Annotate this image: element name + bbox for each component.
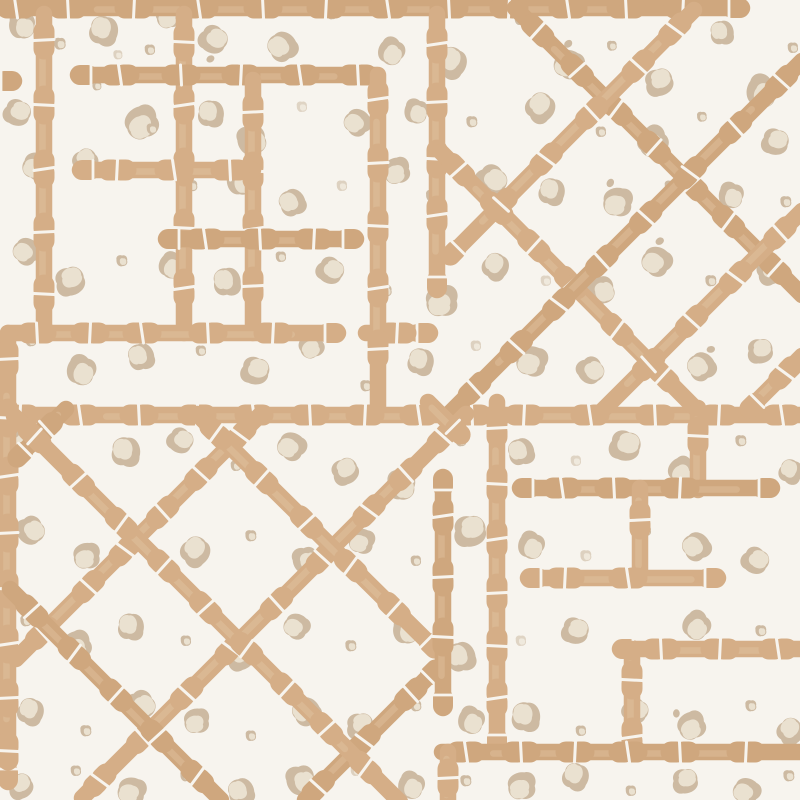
leopard-spot xyxy=(748,339,773,364)
leopard-spot xyxy=(788,42,798,53)
leopard-spot xyxy=(510,700,543,734)
leopard-spot xyxy=(711,21,734,45)
leopard-spot xyxy=(54,38,66,50)
leopard-spot xyxy=(337,180,347,191)
leopard-spot xyxy=(196,345,206,356)
leopard-spot xyxy=(238,354,273,389)
leopard-spot xyxy=(600,177,636,219)
leopard-spot xyxy=(175,531,216,572)
leopard-spot xyxy=(678,528,716,566)
bamboo-trellis-layer xyxy=(0,0,800,800)
leopard-spot xyxy=(147,123,157,134)
bamboo-bar xyxy=(441,152,696,409)
leopard-spot xyxy=(471,340,481,351)
bamboo-bar xyxy=(80,160,253,180)
bamboo-bar xyxy=(442,742,800,762)
leopard-spot xyxy=(163,423,198,458)
leopard-spot xyxy=(184,708,209,733)
leopard-spot xyxy=(783,770,794,781)
leopard-spot xyxy=(345,640,356,651)
leopard-spot xyxy=(735,435,746,446)
leopard-spot xyxy=(189,20,234,65)
leopard-spot xyxy=(576,725,586,736)
bamboo-bar xyxy=(368,75,388,410)
leopard-spot xyxy=(116,611,146,642)
leopard-spot xyxy=(116,255,127,266)
bamboo-bar xyxy=(433,477,453,708)
leopard-spot xyxy=(541,275,551,286)
leopard-spot xyxy=(636,234,683,282)
leopard-spot xyxy=(263,27,302,66)
leopard-spot xyxy=(558,614,592,647)
leopard-spot xyxy=(780,196,791,207)
wallpaper-swatch xyxy=(0,0,800,800)
leopard-spot xyxy=(571,455,581,466)
leopard-spot xyxy=(580,550,591,561)
leopard-spot xyxy=(196,98,226,129)
bamboo-bar xyxy=(622,649,642,752)
bamboo-bar xyxy=(166,229,356,249)
leopard-spot xyxy=(404,345,437,379)
leopard-spot xyxy=(705,275,716,286)
leopard-spot xyxy=(758,125,792,158)
leopard-spot xyxy=(516,635,526,646)
leopard-spot xyxy=(86,12,123,49)
bamboo-bar xyxy=(34,14,54,333)
leopard-spot xyxy=(126,341,156,372)
leopard-spot xyxy=(214,268,241,296)
bamboo-bar xyxy=(197,414,436,650)
leopard-spot xyxy=(728,773,765,800)
leopard-spot xyxy=(477,248,514,285)
leopard-spot xyxy=(513,527,549,563)
leopard-spot xyxy=(454,516,486,547)
leopard-spot xyxy=(520,87,561,128)
leopard-spot xyxy=(673,769,698,794)
leopard-spot xyxy=(80,725,91,736)
bamboo-bar xyxy=(78,65,376,85)
leopard-spot xyxy=(508,772,536,799)
leopard-spot xyxy=(276,251,286,262)
bamboo-bar xyxy=(630,488,650,578)
leopard-spot xyxy=(272,427,311,466)
bamboo-bar xyxy=(8,323,338,343)
leopard-spot xyxy=(558,759,594,795)
bamboo-bar xyxy=(0,405,800,425)
leopard-spot xyxy=(61,350,100,389)
leopard-spot xyxy=(643,67,675,99)
leopard-spot xyxy=(0,95,35,131)
leopard-spot xyxy=(329,455,363,488)
leopard-spot xyxy=(506,436,536,467)
leopard-spot xyxy=(606,427,645,465)
leopard-spot xyxy=(113,50,122,59)
leopard-spot xyxy=(607,41,617,51)
leopard-spot xyxy=(573,353,609,389)
leopard-spot xyxy=(276,186,309,220)
leopard-spot xyxy=(121,101,163,143)
leopard-spot xyxy=(373,33,410,70)
leopard-spot xyxy=(360,380,371,391)
bamboo-trellis-pattern xyxy=(0,0,800,800)
leopard-spot xyxy=(312,252,349,289)
leopard-spot xyxy=(697,112,707,122)
bamboo-bar xyxy=(438,752,458,800)
leopard-spot xyxy=(737,542,774,579)
bamboo-bar xyxy=(620,639,800,659)
leopard-spot xyxy=(245,530,256,541)
leopard-spot xyxy=(460,775,471,786)
leopard-spot xyxy=(110,435,143,469)
leopard-spot xyxy=(401,96,431,126)
leopard-spot xyxy=(596,126,606,137)
leopard-spot xyxy=(755,625,766,636)
leopard-spot xyxy=(73,543,99,569)
leopard-spot xyxy=(626,785,636,796)
leopard-spot xyxy=(279,609,314,644)
bamboo-bar xyxy=(243,80,263,333)
bamboo-bar xyxy=(82,414,466,798)
bamboo-bar xyxy=(0,72,14,91)
bamboo-bar xyxy=(487,402,507,748)
bamboo-bar xyxy=(0,0,742,18)
leopard-spot xyxy=(145,44,155,55)
leopard-spot xyxy=(411,555,421,566)
bamboo-bar xyxy=(0,333,18,782)
leopard-spot xyxy=(453,702,489,738)
leopard-spot xyxy=(114,773,149,800)
bamboo-bar xyxy=(748,356,800,410)
leopard-spot xyxy=(246,730,256,741)
leopard-spot xyxy=(54,265,88,298)
leopard-spot xyxy=(297,101,307,112)
leopard-spot xyxy=(181,635,191,646)
leopard-spot xyxy=(226,776,256,800)
leopard-spot xyxy=(670,700,709,743)
leopard-spot xyxy=(466,116,477,127)
leopard-spot xyxy=(71,765,81,776)
leopard-spot xyxy=(13,694,49,730)
leopard-spot xyxy=(745,700,756,711)
leopard-spot xyxy=(682,343,727,385)
leopard-spot xyxy=(535,175,568,209)
bamboo-bar xyxy=(528,568,718,588)
leopard-spot xyxy=(775,455,800,487)
